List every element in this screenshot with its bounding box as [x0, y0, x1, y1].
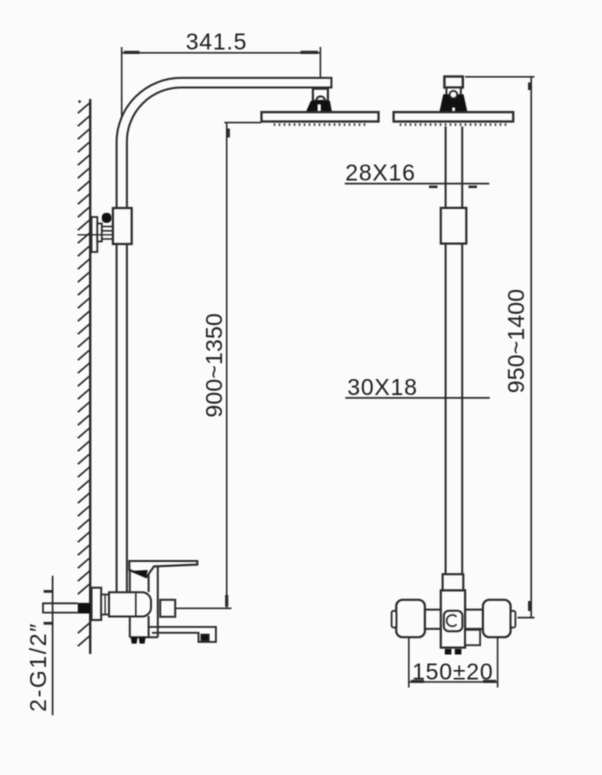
svg-text:28X16: 28X16: [345, 159, 416, 185]
svg-text:950~1400: 950~1400: [503, 289, 529, 394]
svg-text:30X18: 30X18: [347, 374, 418, 400]
svg-text:150±20: 150±20: [412, 659, 493, 685]
svg-text:341.5: 341.5: [186, 29, 248, 55]
svg-text:2-G1/2″: 2-G1/2″: [25, 622, 51, 712]
svg-text:900~1350: 900~1350: [201, 313, 227, 418]
